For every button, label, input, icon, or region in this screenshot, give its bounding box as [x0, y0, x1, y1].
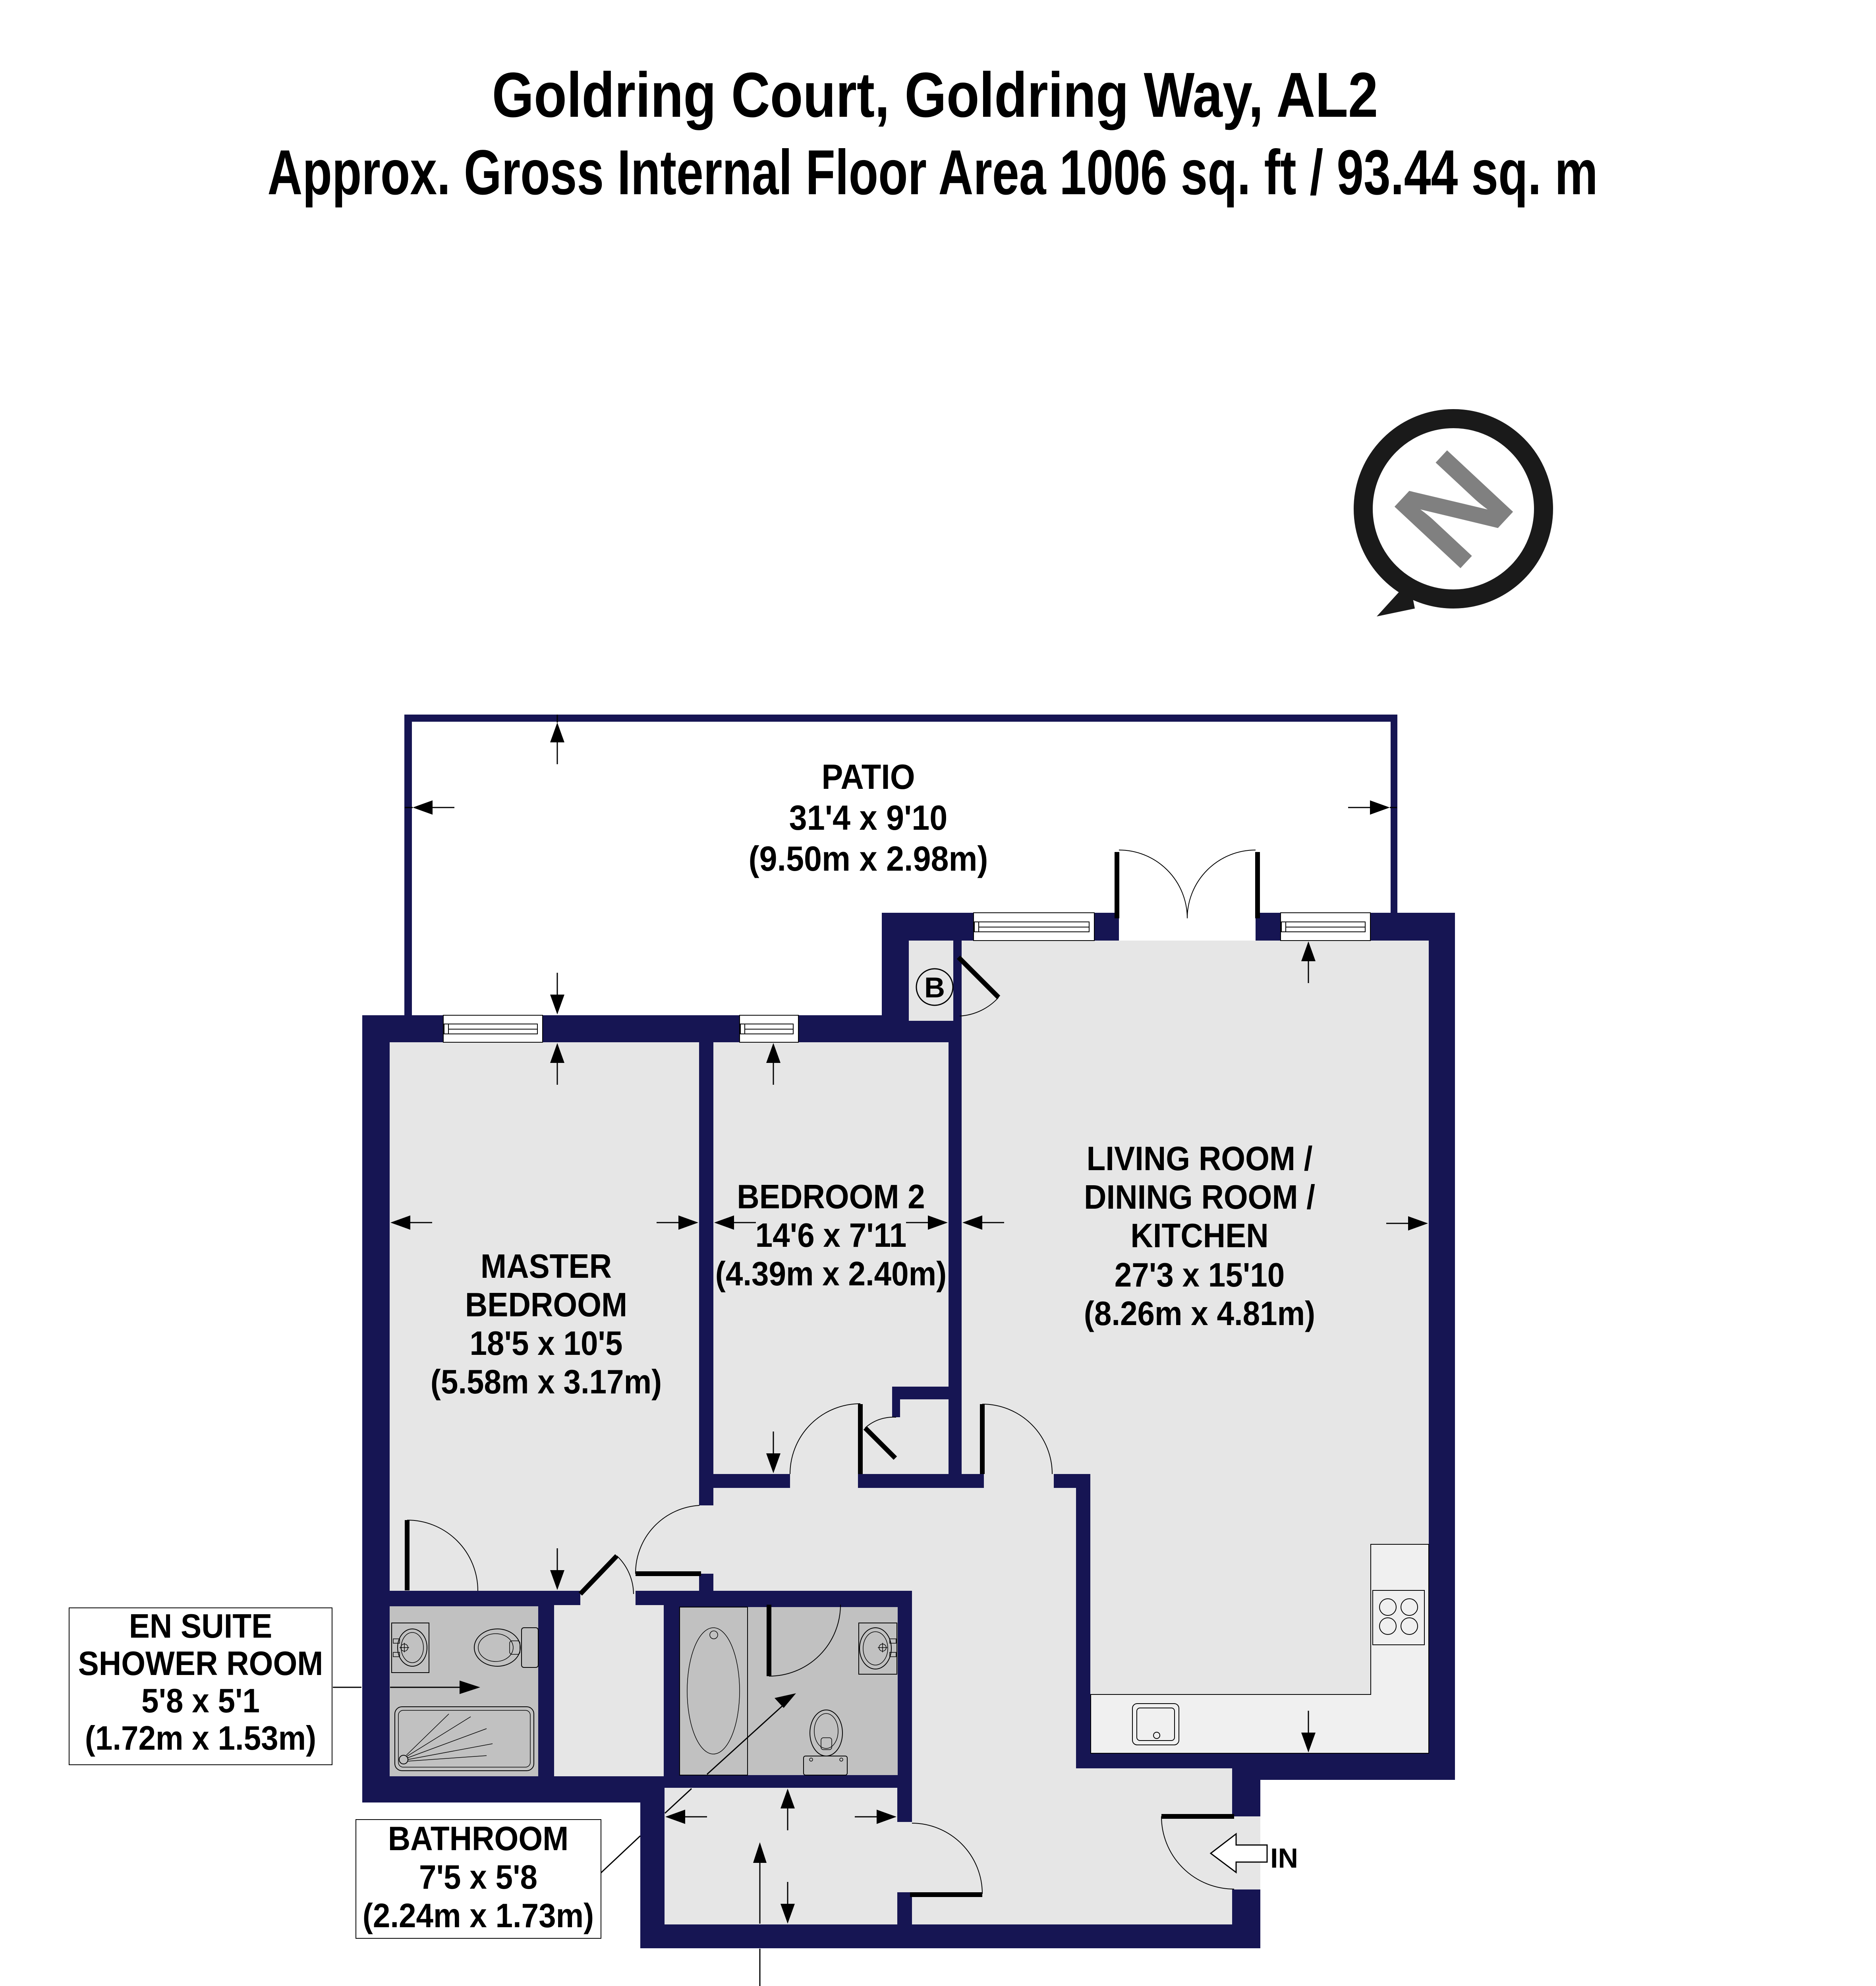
- svg-text:27'3 x 15'10: 27'3 x 15'10: [1115, 1256, 1285, 1294]
- svg-text:31'4 x 9'10: 31'4 x 9'10: [789, 798, 948, 837]
- svg-text:IN: IN: [1270, 1843, 1298, 1874]
- svg-text:SHOWER ROOM: SHOWER ROOM: [78, 1645, 323, 1683]
- svg-text:5'8 x 5'1: 5'8 x 5'1: [141, 1682, 260, 1720]
- svg-text:BEDROOM 2: BEDROOM 2: [737, 1178, 925, 1216]
- svg-text:14'6 x 7'11: 14'6 x 7'11: [755, 1217, 907, 1254]
- svg-text:BEDROOM: BEDROOM: [465, 1286, 627, 1324]
- svg-text:7'5 x 5'8: 7'5 x 5'8: [419, 1858, 537, 1896]
- svg-text:BATHROOM: BATHROOM: [388, 1820, 569, 1858]
- svg-text:Approx. Gross Internal Floor A: Approx. Gross Internal Floor Area 1006 s…: [267, 137, 1598, 208]
- svg-text:EN SUITE: EN SUITE: [129, 1607, 272, 1645]
- svg-text:(5.58m x 3.17m): (5.58m x 3.17m): [431, 1363, 662, 1401]
- svg-text:(1.72m x 1.53m): (1.72m x 1.53m): [85, 1719, 316, 1757]
- svg-text:KITCHEN: KITCHEN: [1130, 1217, 1268, 1255]
- svg-text:(4.39m x 2.40m): (4.39m x 2.40m): [715, 1255, 947, 1293]
- svg-text:LIVING ROOM /: LIVING ROOM /: [1086, 1140, 1312, 1178]
- svg-text:DINING ROOM /: DINING ROOM /: [1084, 1178, 1315, 1216]
- svg-text:(2.24m x 1.73m): (2.24m x 1.73m): [363, 1897, 594, 1935]
- svg-text:MASTER: MASTER: [481, 1248, 612, 1285]
- svg-text:(8.26m x 4.81m): (8.26m x 4.81m): [1084, 1295, 1315, 1333]
- svg-text:Goldring Court, Goldring Way,: Goldring Court, Goldring Way, AL2: [492, 60, 1378, 130]
- svg-text:B: B: [924, 972, 945, 1004]
- svg-text:18'5 x 10'5: 18'5 x 10'5: [469, 1325, 622, 1362]
- svg-text:PATIO: PATIO: [821, 757, 915, 796]
- svg-text:(9.50m x 2.98m): (9.50m x 2.98m): [748, 839, 988, 878]
